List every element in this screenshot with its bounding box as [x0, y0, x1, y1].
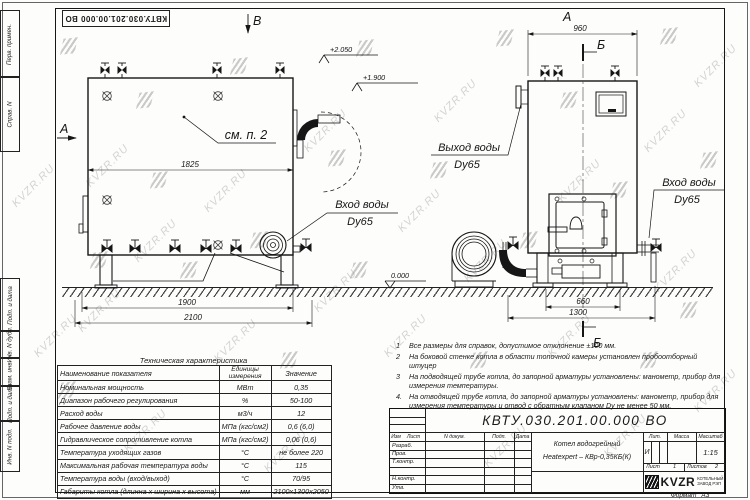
side-pipe-elbow	[293, 110, 361, 192]
tech-row: Рабочее давление водыМПа (кгс/см2)0,6 (6…	[58, 420, 332, 433]
row-razrab: Разраб.	[392, 443, 425, 449]
boiler-side-view	[57, 14, 426, 327]
company-logo-cell: KVZR КОТЕЛЬНЫЙЗАВОД РЭП	[644, 472, 724, 492]
title-block: КВТУ.030.201.00.000 ВО Изм Лист N докум.…	[389, 408, 726, 494]
inlet-water-dn-front: Dy65	[674, 194, 701, 206]
note-number: 2	[396, 352, 409, 371]
dim-660: 660	[576, 297, 590, 306]
inlet-water-label-front: Вход воды	[662, 177, 715, 189]
col-ndocum: N докум.	[425, 433, 484, 441]
notes-list: 1Все размеры для справок, допустимое отк…	[396, 341, 726, 412]
format-label: Формат	[671, 492, 697, 499]
view-arrow-b-label: В	[253, 14, 261, 28]
dim-960: 960	[573, 24, 587, 33]
product-name-line2: Heatexpert – КВр-0,35КБ(К)	[532, 451, 642, 463]
product-name-line1: Котел водогрейный	[532, 438, 642, 450]
scale-header: Масштаб	[696, 433, 725, 441]
outlet-flange	[516, 86, 528, 108]
company-name: КОТЕЛЬНЫЙЗАВОД РЭП	[697, 477, 723, 486]
row-utv: Утв.	[392, 485, 425, 491]
section-marks	[583, 44, 597, 337]
tech-row: Габариты котла (длинна х ширина х высота…	[58, 485, 332, 498]
tech-table: Наименование показателя Единицыизмерения…	[57, 365, 332, 499]
blower-fan	[452, 232, 496, 287]
col-izm: Изм	[390, 433, 402, 441]
mass-header: Масса	[667, 433, 696, 441]
row-nkontr: Н.контр.	[392, 476, 425, 482]
dim-2100: 2100	[183, 313, 202, 322]
note-number: 3	[396, 372, 409, 391]
row-prov: Пров.	[392, 451, 425, 457]
dim-1825: 1825	[181, 160, 199, 169]
row-tkontr: Т.контр.	[392, 459, 425, 465]
tech-row: Диапазон рабочего регулирования%50-100	[58, 394, 332, 407]
view-arrow-a-label: А	[59, 122, 68, 136]
elevation-marks	[319, 55, 426, 288]
dim-1900: 1900	[178, 298, 196, 307]
elevation-top-label: +2.050	[330, 45, 352, 54]
note-text: На боковой стенке котла в области топочн…	[409, 352, 726, 371]
col-podp: Подп.	[484, 433, 514, 441]
lit-header: Лит.	[643, 433, 667, 441]
lit-value: И	[643, 442, 651, 462]
format-value: А3	[701, 492, 709, 499]
outlet-water-label: Выход воды	[438, 142, 500, 154]
elevation-zero-label: 0.000	[391, 271, 409, 280]
sheets-value: 2	[715, 464, 718, 470]
note-item: 3На подводящей трубе котла, до запорной …	[396, 372, 726, 391]
tech-row: Температура уходящих газов°Сне более 220	[58, 446, 332, 459]
kvzr-logo-icon	[645, 475, 659, 489]
tech-row: Гидравлическое сопротивление котлаМПа (к…	[58, 433, 332, 446]
tech-table-title: Техническая характеристика	[57, 356, 330, 365]
inlet-water-dn-side: Dy65	[347, 216, 374, 228]
col-list: Лист	[402, 433, 425, 441]
tech-row: Максимальная рабочая температура воды°С1…	[58, 459, 332, 472]
view-a-title: А	[562, 10, 571, 24]
tech-row: Расход водым3/ч12	[58, 407, 332, 420]
col-value: Значение	[271, 366, 331, 381]
col-name: Наименование показателя	[58, 366, 220, 381]
title-block-doc-number: КВТУ.030.201.00.000 ВО	[426, 410, 724, 431]
inlet-water-label-side: Вход воды	[335, 199, 388, 211]
kvzr-logo-text: KVZR	[661, 475, 696, 489]
inlet-flange	[260, 232, 286, 258]
tech-characteristics: Техническая характеристика Наименование …	[57, 356, 330, 499]
note-text: Все размеры для справок, допустимое откл…	[409, 341, 616, 350]
tech-row: Номинальная мощностьМВт0,35	[58, 381, 332, 394]
drawing-sheet: KVZR.RU KVZR.RU KVZR.RU KVZR.RU KVZR.RU …	[0, 0, 750, 500]
sheet-value: 1	[673, 464, 676, 470]
col-data: Дата	[514, 433, 531, 441]
section-b-top-label: Б	[597, 38, 605, 52]
scale-value: 1:15	[696, 442, 725, 462]
dim-1300: 1300	[569, 308, 587, 317]
sheets-label: Листов	[687, 464, 707, 470]
control-panel	[596, 92, 626, 116]
sheet-label: Лист	[646, 464, 660, 470]
note-item: 2На боковой стенке котла в области топоч…	[396, 352, 726, 371]
note-item: 1Все размеры для справок, допустимое отк…	[396, 341, 726, 350]
tech-header-row: Наименование показателя Единицыизмерения…	[58, 366, 332, 381]
elevation-pipe-label: +1.900	[363, 73, 385, 82]
note-text: На подводящей трубе котла, до запорной а…	[409, 372, 726, 391]
tech-row: Температура воды (вход/выход)°С70/95	[58, 472, 332, 485]
base-frame	[533, 253, 627, 287]
outlet-water-dn: Dy65	[454, 159, 481, 171]
format-note: Формат А3	[650, 492, 730, 499]
col-units: Единицыизмерения	[219, 366, 271, 381]
note-number: 1	[396, 341, 409, 350]
see-note-ref: см. п. 2	[225, 128, 268, 142]
